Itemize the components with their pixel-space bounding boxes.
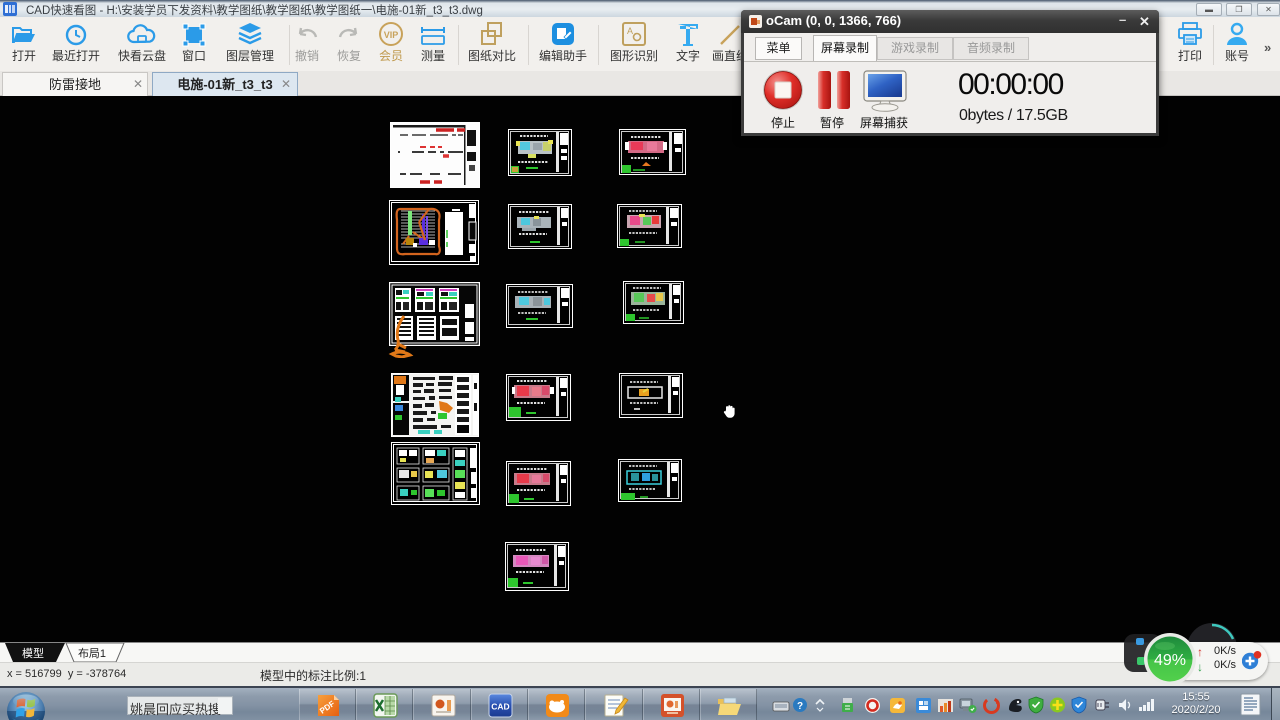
svg-text:49%: 49% bbox=[1154, 652, 1186, 669]
svg-text:?: ? bbox=[797, 701, 803, 712]
svg-text:A: A bbox=[627, 26, 633, 36]
svg-text:CAD: CAD bbox=[491, 702, 509, 712]
svg-text:布局1: 布局1 bbox=[78, 647, 106, 660]
svg-text:VIP: VIP bbox=[384, 30, 399, 40]
svg-text:模型: 模型 bbox=[22, 646, 44, 660]
